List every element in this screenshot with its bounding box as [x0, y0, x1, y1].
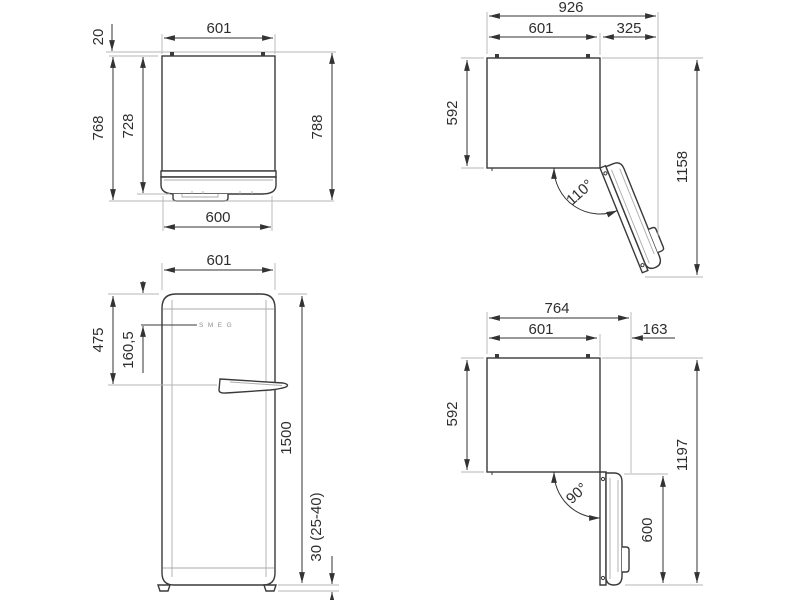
dim-label-total-depth: 1197 [674, 439, 691, 471]
fridge-dimension-drawing: 601 20 768 728 788 600 110° [0, 0, 800, 600]
door-handle-front [219, 379, 287, 393]
dim-label-total-width: 764 [544, 300, 569, 317]
dim-label-body-depth: 592 [444, 100, 461, 125]
dim-label-width: 601 [206, 252, 231, 269]
dimension-drawing-page: 601 20 768 728 788 600 110° [0, 0, 800, 600]
dim-label-angle-90: 90° [563, 480, 591, 508]
dim-label-door-length: 600 [639, 517, 656, 542]
view-top-plan-door-90: 90° 764 601 163 592 1197 600 [444, 300, 703, 585]
handle-top-view [173, 194, 228, 201]
dim-label-depth-right: 788 [309, 114, 326, 139]
dim-label-depth-left: 768 [90, 115, 107, 140]
brand-logo: SMEG [199, 322, 236, 329]
foot-right [264, 585, 276, 591]
dim-label-body-depth: 592 [444, 401, 461, 426]
hinge-mark-right [261, 52, 265, 56]
dim-label-height: 1500 [278, 421, 295, 454]
dim-label-handle-from-top: 475 [90, 327, 107, 352]
cabinet-top-view [487, 58, 600, 168]
cabinet-top-view [162, 56, 275, 171]
dim-label-total-width: 926 [558, 0, 583, 16]
door-panel [600, 472, 606, 585]
dim-label-body-width: 601 [528, 321, 553, 338]
hinge-mark-left [170, 52, 174, 56]
door-handle [622, 547, 629, 572]
open-door-90 [600, 472, 629, 585]
dim-label-width-top: 601 [206, 20, 231, 37]
dim-label-width-door: 600 [205, 209, 230, 226]
dim-label-feet-height: 30 (25-40) [308, 492, 325, 561]
open-door-110 [600, 157, 669, 273]
dim-label-logo-from-top: 160,5 [120, 331, 137, 369]
door-panel-top-view [161, 171, 276, 177]
view-top-plan-door-110: 110° 926 601 325 592 1158 [444, 0, 703, 277]
hinge-mark-left [495, 54, 499, 58]
hinge-mark-right [586, 54, 590, 58]
dim-label-door-swing: 163 [642, 321, 667, 338]
hinge-mark-right [586, 354, 590, 358]
fridge-front-outline [162, 294, 275, 585]
dim-label-angle-110: 110° [563, 176, 597, 209]
view-front: SMEG 601 475 160,5 1500 30 (25-40) [90, 252, 339, 599]
foot-left [158, 585, 170, 591]
dim-label-total-depth: 1158 [674, 151, 691, 183]
view-top-plan-closed: 601 20 768 728 788 600 [90, 20, 336, 231]
dim-label-body-width: 601 [528, 20, 553, 37]
dim-label-wall-gap: 20 [90, 29, 107, 46]
dim-label-door-swing: 325 [616, 20, 641, 37]
door-front [606, 473, 622, 585]
cabinet-top-view [487, 358, 600, 472]
hinge-mark-left [495, 354, 499, 358]
dim-label-depth-door: 728 [120, 113, 137, 138]
